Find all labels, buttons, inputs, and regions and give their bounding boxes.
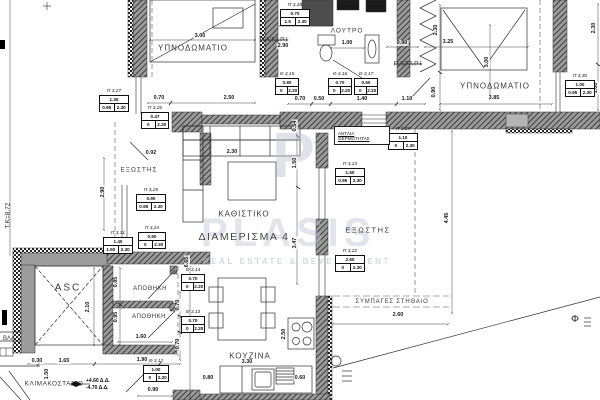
opening-id: Π 3,24 bbox=[138, 226, 166, 231]
opening-width: 0.90 bbox=[137, 195, 165, 203]
opening-width: 1.10 bbox=[389, 134, 417, 142]
opening-schedule: Θ 3,14 0.70 0 2.20 bbox=[181, 268, 205, 291]
opening-height: 2.30 bbox=[581, 89, 595, 96]
opening-height: 2.30 bbox=[296, 18, 310, 25]
opening-schedules: Π 3,28 0.70 1.5 2.30Π 3,27 1.30 0.95 2.3… bbox=[0, 0, 600, 400]
opening-schedule: Θ 3,17 0.60 0 2.20 bbox=[354, 72, 378, 95]
opening-id: Π 3,30 bbox=[565, 74, 595, 79]
opening-id: Θ 3,15 bbox=[275, 72, 299, 77]
opening-width: 2.60 bbox=[336, 256, 364, 264]
opening-schedule: Π 3,26 0.47 0 2.30 bbox=[141, 106, 169, 129]
opening-schedule: Π 3,30 1.00 0.95 2.30 bbox=[565, 74, 595, 97]
heat-pump-line2: ΘΕΡΜΟΤΗΤΑΣ bbox=[335, 136, 389, 141]
opening-schedule: Π 3,24 0.60 0 2.30 bbox=[138, 226, 166, 249]
opening-id: Π 3,28 bbox=[280, 3, 310, 8]
opening-width: 0.80 bbox=[276, 79, 298, 87]
opening-height: 2.20 bbox=[194, 325, 205, 332]
opening-height: 2.30 bbox=[119, 246, 133, 253]
opening-height: 2.30 bbox=[115, 104, 129, 111]
opening-width: 0.70 bbox=[281, 10, 309, 18]
opening-height: 2.20 bbox=[157, 374, 169, 381]
opening-sill: 0.95 bbox=[100, 104, 115, 111]
opening-height: 2.30 bbox=[153, 241, 166, 248]
opening-id: Θ 3,13 bbox=[181, 310, 205, 315]
opening-height: 2.20 bbox=[367, 87, 378, 94]
opening-width: 1.50 bbox=[336, 169, 364, 177]
opening-sill: 0 bbox=[336, 264, 351, 271]
opening-sill: 1.5 bbox=[281, 18, 296, 25]
opening-schedule: Π 3,29 1.10 0 2.30 bbox=[388, 127, 418, 150]
opening-schedule: Π 3,31 1.40 1.50 2.30 bbox=[103, 231, 133, 254]
opening-schedule: Π 3,27 1.30 0.95 2.30 bbox=[99, 89, 129, 112]
opening-sill: 0.95 bbox=[566, 89, 581, 96]
opening-width: 0.70 bbox=[182, 275, 204, 283]
opening-height: 2.20 bbox=[194, 283, 205, 290]
opening-sill: 0 bbox=[142, 121, 156, 128]
opening-id: Π 3,29 bbox=[388, 127, 418, 132]
floor-plan: P PLASIS REAL ESTATE & DEVELOPMENT ΥΠΝΟΔ… bbox=[0, 0, 600, 400]
opening-id: Π 3,27 bbox=[99, 89, 129, 94]
opening-width: 1.00 bbox=[144, 366, 168, 374]
opening-sill: 0.95 bbox=[336, 177, 351, 184]
opening-height: 2.20 bbox=[341, 87, 352, 94]
opening-width: 0.47 bbox=[142, 113, 168, 121]
opening-schedule: Π 3,23 1.50 0.95 2.30 bbox=[335, 162, 365, 185]
opening-schedule: Θ 3,12 1.00 0 2.20 bbox=[143, 359, 169, 382]
opening-id: Θ 3,12 bbox=[143, 359, 169, 364]
elevation-upper: +4.60 Δ.Δ. bbox=[86, 378, 110, 384]
opening-id: Θ 3,16 bbox=[328, 72, 352, 77]
opening-id: Π 3,26 bbox=[141, 106, 169, 111]
phi-symbol: Φ bbox=[571, 314, 579, 325]
opening-schedule: Π 3,28 0.70 1.5 2.30 bbox=[280, 3, 310, 26]
opening-schedule: Θ 3,13 0.70 0 2.20 bbox=[181, 310, 205, 333]
opening-sill: 0 bbox=[182, 283, 194, 290]
opening-id: Π 3,23 bbox=[335, 162, 365, 167]
opening-height: 2.30 bbox=[351, 177, 365, 184]
opening-height: 2.30 bbox=[351, 264, 365, 271]
opening-sill: 0 bbox=[139, 241, 153, 248]
apartment-title: ΔΙΑΜΕΡΙΣΜΑ 4 bbox=[198, 231, 289, 243]
opening-schedule: Θ 3,16 0.70 0 2.20 bbox=[328, 72, 352, 95]
opening-width: 1.30 bbox=[100, 96, 128, 104]
opening-id: Θ 3,17 bbox=[354, 72, 378, 77]
opening-sill: 0.95 bbox=[137, 203, 152, 210]
opening-width: 0.70 bbox=[182, 317, 204, 325]
opening-width: 1.40 bbox=[104, 238, 132, 246]
opening-schedule: Π 3,25 0.90 0.95 2.30 bbox=[136, 188, 166, 211]
opening-width: 0.60 bbox=[355, 79, 377, 87]
opening-schedule: Π 3,22 2.60 0 2.30 bbox=[335, 249, 365, 272]
elevation-lower: -4.70 Δ.Δ. bbox=[86, 385, 109, 391]
heat-pump-box: ΑΝΤΛΙΑ ΘΕΡΜΟΤΗΤΑΣ bbox=[334, 126, 390, 145]
opening-width: 0.70 bbox=[329, 79, 351, 87]
opening-sill: 0 bbox=[144, 374, 157, 381]
opening-sill: 0 bbox=[389, 142, 404, 149]
opening-sill: 0 bbox=[182, 325, 194, 332]
opening-width: 0.60 bbox=[139, 233, 165, 241]
opening-schedule: Θ 3,15 0.80 0 2.20 bbox=[275, 72, 299, 95]
opening-id: Π 3,22 bbox=[335, 249, 365, 254]
opening-sill: 0 bbox=[355, 87, 367, 94]
opening-height: 2.30 bbox=[404, 142, 418, 149]
opening-height: 2.20 bbox=[288, 87, 299, 94]
opening-id: Π 3,25 bbox=[136, 188, 166, 193]
opening-width: 1.00 bbox=[566, 81, 594, 89]
opening-sill: 0 bbox=[276, 87, 288, 94]
opening-id: Π 3,31 bbox=[103, 231, 133, 236]
opening-id: Θ 3,14 bbox=[181, 268, 205, 273]
opening-sill: 1.50 bbox=[104, 246, 119, 253]
level-annotation: Τ.Κ=8.72 bbox=[5, 185, 12, 247]
opening-sill: 0 bbox=[329, 87, 341, 94]
opening-height: 2.30 bbox=[156, 121, 169, 128]
opening-height: 2.30 bbox=[152, 203, 166, 210]
